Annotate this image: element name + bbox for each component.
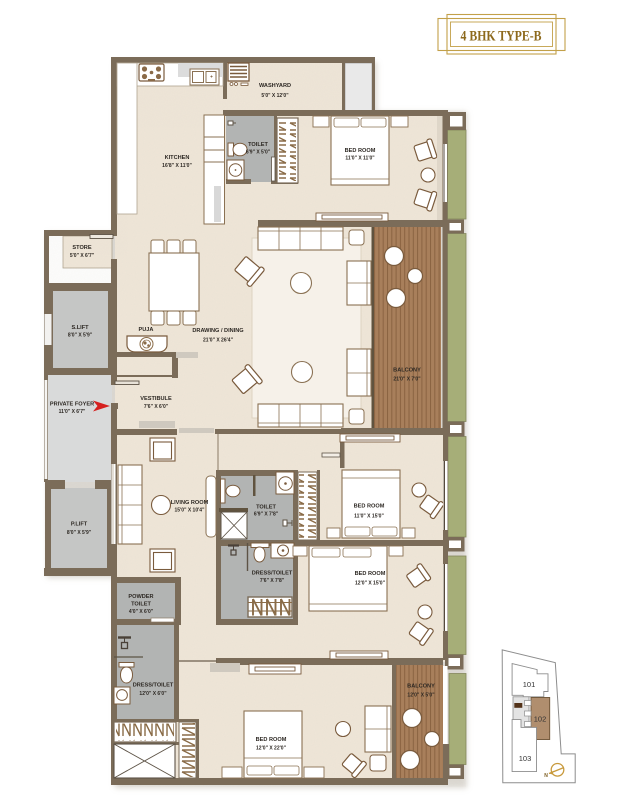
- svg-text:TOILET: TOILET: [248, 142, 268, 148]
- svg-text:8'0" X 5'9": 8'0" X 5'9": [67, 530, 92, 536]
- svg-text:16'8" X 11'0": 16'8" X 11'0": [162, 163, 192, 169]
- svg-text:11'0" X 6'7": 11'0" X 6'7": [59, 409, 86, 415]
- svg-text:KITCHEN: KITCHEN: [165, 155, 190, 161]
- svg-text:BED ROOM: BED ROOM: [354, 504, 385, 510]
- svg-text:12'0" X 15'0": 12'0" X 15'0": [355, 581, 386, 587]
- svg-text:7'6" X 7'8": 7'6" X 7'8": [260, 578, 285, 584]
- svg-text:102: 102: [534, 715, 547, 724]
- svg-text:5'0" X 6'7": 5'0" X 6'7": [70, 253, 95, 259]
- svg-text:103: 103: [519, 754, 532, 763]
- svg-text:12'0" X 22'0": 12'0" X 22'0": [256, 746, 287, 752]
- svg-text:DRESS/TOILET: DRESS/TOILET: [252, 571, 293, 577]
- svg-text:12'0" X 5'0": 12'0" X 5'0": [407, 693, 435, 699]
- svg-text:LIVING ROOM: LIVING ROOM: [171, 500, 209, 506]
- svg-text:11'0" X 15'0": 11'0" X 15'0": [354, 514, 384, 520]
- svg-text:DRAWING / DINING: DRAWING / DINING: [192, 328, 243, 334]
- svg-text:STORE: STORE: [72, 245, 91, 251]
- svg-text:101: 101: [523, 680, 536, 689]
- svg-text:POWDER: POWDER: [128, 594, 153, 600]
- svg-text:11'0" X 11'0": 11'0" X 11'0": [345, 156, 375, 162]
- svg-text:6'9" X 7'8": 6'9" X 7'8": [254, 512, 279, 518]
- svg-text:7'6" X 6'0": 7'6" X 6'0": [144, 404, 169, 410]
- svg-text:21'0" X 7'0": 21'0" X 7'0": [393, 377, 421, 383]
- svg-text:S.LIFT: S.LIFT: [71, 325, 89, 331]
- svg-text:21'0" X 26'4": 21'0" X 26'4": [203, 338, 234, 344]
- svg-text:BALCONY: BALCONY: [407, 684, 435, 690]
- svg-text:PRIVATE FOYER: PRIVATE FOYER: [50, 402, 94, 408]
- svg-text:8'0" X 5'9": 8'0" X 5'9": [68, 333, 93, 339]
- svg-text:15'0" X 10'4": 15'0" X 10'4": [175, 508, 206, 514]
- svg-text:N: N: [544, 773, 548, 779]
- svg-text:4 BHK TYPE-B: 4 BHK TYPE-B: [461, 29, 542, 45]
- svg-text:PUJA: PUJA: [139, 327, 154, 333]
- svg-text:WASHYARD: WASHYARD: [259, 83, 291, 89]
- svg-text:5'0" X 12'0": 5'0" X 12'0": [261, 93, 289, 99]
- svg-text:DRESS/TOILET: DRESS/TOILET: [133, 683, 174, 689]
- svg-text:BED ROOM: BED ROOM: [256, 737, 287, 743]
- svg-text:P.LIFT: P.LIFT: [71, 522, 88, 528]
- svg-text:4'0" X 6'0": 4'0" X 6'0": [129, 609, 154, 615]
- svg-text:6'9" X 5'0": 6'9" X 5'0": [246, 150, 271, 156]
- svg-text:BED ROOM: BED ROOM: [355, 571, 386, 577]
- svg-text:VESTIBULE: VESTIBULE: [140, 396, 172, 402]
- svg-text:BALCONY: BALCONY: [393, 368, 421, 374]
- svg-text:TOILET: TOILET: [256, 505, 276, 511]
- svg-text:BED ROOM: BED ROOM: [345, 148, 376, 154]
- svg-text:12'0" X 6'0": 12'0" X 6'0": [139, 691, 167, 697]
- svg-text:TOILET: TOILET: [131, 602, 151, 608]
